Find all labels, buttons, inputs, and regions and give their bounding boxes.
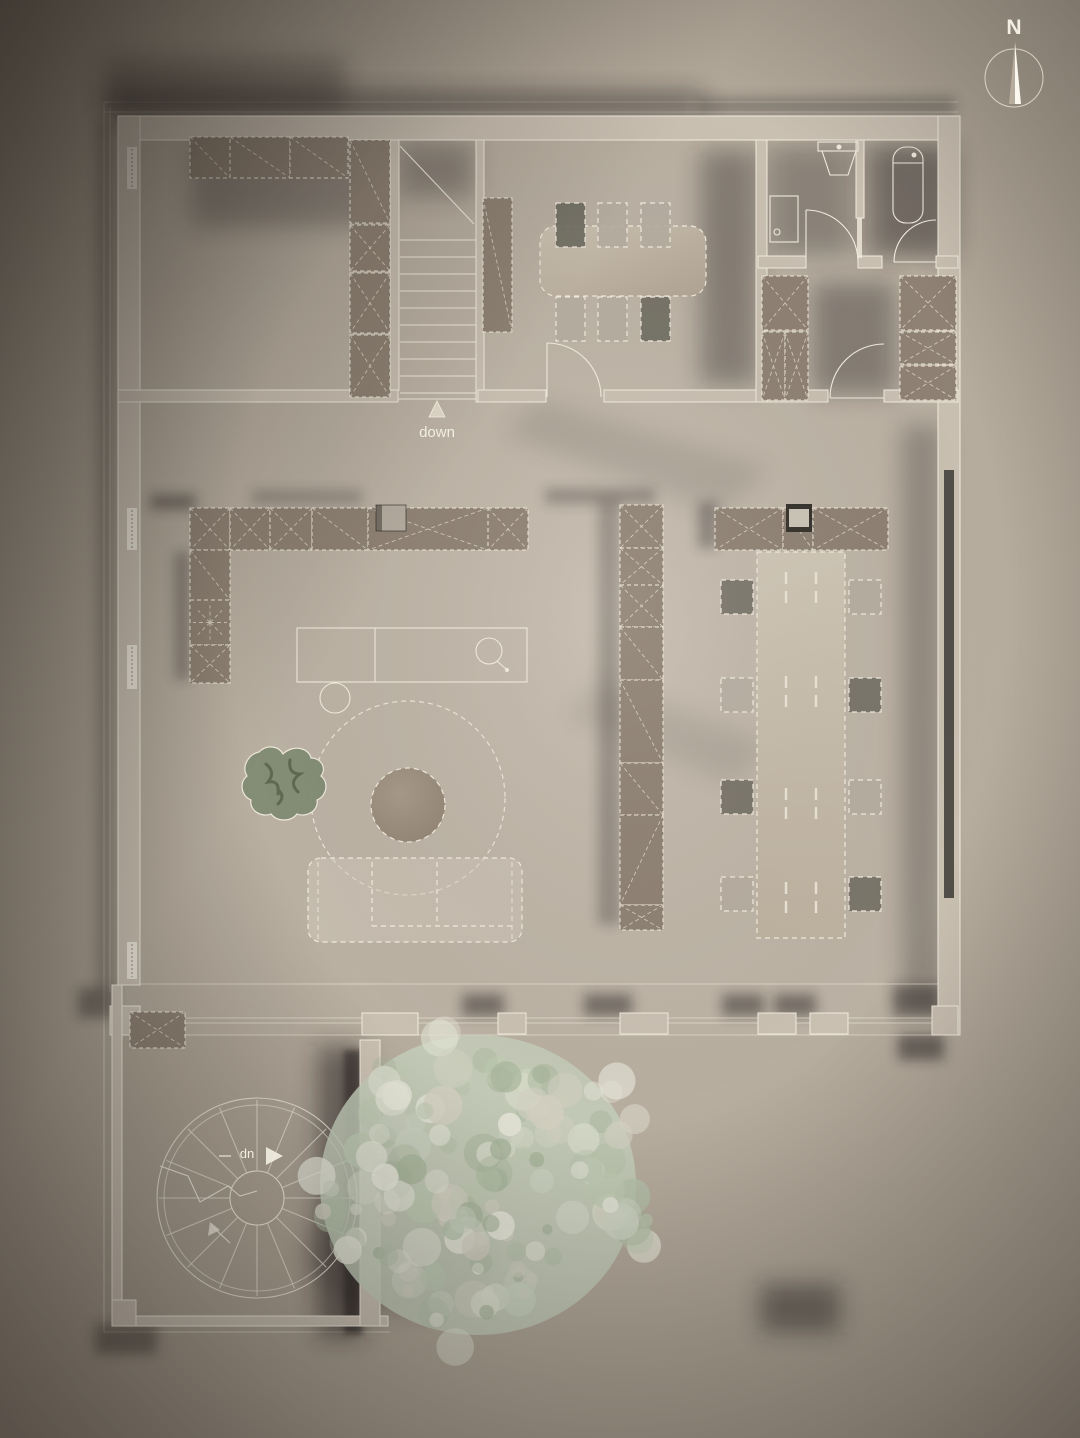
floor-plan-canvas: N down up (0, 0, 1080, 1438)
corner-shade-overlay (0, 0, 1080, 1438)
up-label: up (240, 1148, 254, 1163)
compass-north-label: N (1006, 16, 1021, 39)
down-label: down (419, 424, 455, 441)
floor-plan-drawing: N down up (0, 0, 1080, 1438)
